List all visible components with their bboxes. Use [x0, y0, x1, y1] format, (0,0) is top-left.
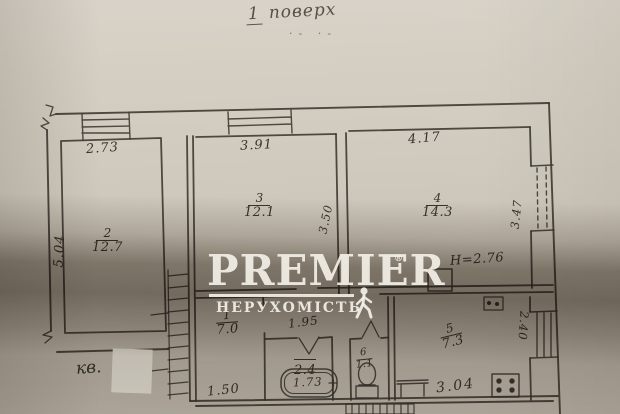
room-label-3: 3 12.1 [244, 189, 275, 219]
dim-room4-width: 4.17 [407, 130, 441, 148]
room2-area: 12.7 [92, 241, 123, 255]
door-swing-wc [362, 321, 379, 338]
room3-number: 3 [248, 192, 270, 206]
room-label-4: 4 14.3 [422, 189, 453, 219]
vent-shaft-icon [428, 269, 452, 291]
apartment-label: кв. [75, 357, 102, 379]
electric-panel-icon [484, 297, 503, 310]
bath-number [294, 359, 316, 360]
floor-number: 1 [246, 4, 263, 26]
dim-room3-width: 3.91 [240, 137, 274, 154]
sink-icon [397, 380, 428, 397]
window-kitchen-icon [530, 311, 558, 358]
room1-area: 7.0 [216, 322, 239, 337]
room3-area: 12.1 [244, 206, 275, 220]
window-room2-icon [82, 113, 130, 140]
erased-number-patch [111, 348, 153, 393]
room6-area: 1.1 [355, 359, 373, 371]
dim-room2-width: 2.73 [86, 140, 120, 157]
dim-left-depth: 5.04 [51, 223, 68, 268]
room4-number: 4 [426, 192, 448, 206]
window-room3-icon [228, 110, 292, 134]
room4-area: 14.3 [422, 206, 453, 220]
window-room4-icon [531, 165, 554, 231]
stove-icon [492, 374, 519, 397]
title-marks: ·- ·- [289, 27, 337, 40]
room-label-6: 6 1.1 [354, 341, 374, 371]
bath-area: 2.4 [294, 364, 316, 378]
room-label-2: 2 12.7 [92, 224, 123, 254]
hatched-block-icon [346, 404, 414, 414]
floor-word: поверх [268, 0, 337, 23]
room-label-1: 1 7.0 [215, 305, 239, 337]
floor-plan-photo: 1поверх ·- ·- 2.73 3.91 4.17 5.04 3.50 3… [0, 0, 620, 414]
room2-number: 2 [96, 227, 118, 241]
entrance-hatched-wall [151, 270, 188, 399]
room-label-bath: 2.4 [294, 347, 316, 377]
